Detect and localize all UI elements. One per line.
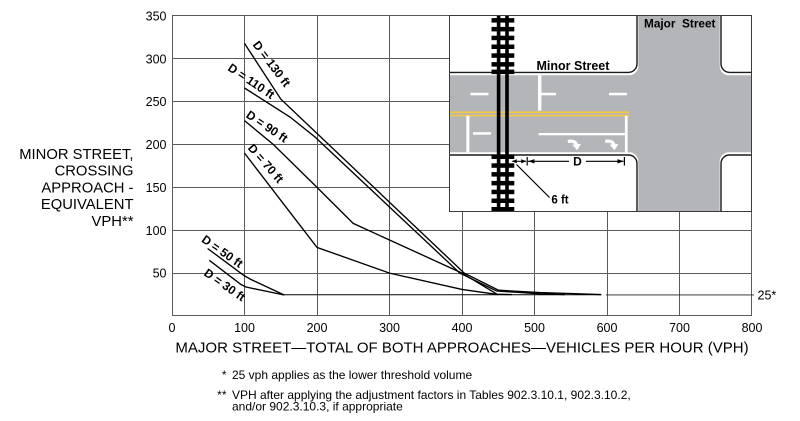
- svg-text:200: 200: [146, 138, 167, 152]
- svg-text:150: 150: [146, 181, 167, 195]
- svg-text:100: 100: [146, 224, 167, 238]
- svg-text:300: 300: [379, 321, 400, 335]
- svg-text:6 ft: 6 ft: [551, 195, 568, 207]
- svg-text:25*: 25*: [758, 289, 777, 303]
- svg-text:and/or 902.3.10.3, if appropri: and/or 902.3.10.3, if appropriate: [232, 400, 403, 414]
- svg-text:**: **: [217, 388, 227, 402]
- svg-text:0: 0: [169, 321, 176, 335]
- svg-text:500: 500: [524, 321, 545, 335]
- svg-text:VPH**: VPH**: [92, 214, 134, 230]
- svg-text:800: 800: [742, 321, 763, 335]
- svg-text:350: 350: [146, 10, 167, 24]
- svg-text:EQUIVALENT: EQUIVALENT: [41, 197, 134, 213]
- svg-text:100: 100: [234, 321, 255, 335]
- svg-text:600: 600: [597, 321, 618, 335]
- svg-text:Minor Street: Minor Street: [537, 59, 611, 73]
- svg-text:700: 700: [669, 321, 690, 335]
- svg-text:200: 200: [307, 321, 328, 335]
- svg-text:400: 400: [452, 321, 473, 335]
- svg-text:CROSSING: CROSSING: [55, 164, 134, 180]
- svg-text:MINOR STREET,: MINOR STREET,: [19, 147, 133, 163]
- svg-text:300: 300: [146, 52, 167, 66]
- svg-text:25 vph applies as the lower th: 25 vph applies as the lower threshold vo…: [232, 368, 472, 382]
- svg-text:Major Street: Major Street: [644, 17, 716, 31]
- svg-text:APPROACH -: APPROACH -: [41, 181, 133, 197]
- svg-text:50: 50: [153, 267, 167, 281]
- svg-text:250: 250: [146, 95, 167, 109]
- svg-text:D: D: [573, 154, 582, 168]
- svg-text:*: *: [222, 368, 227, 382]
- svg-text:MAJOR STREET—TOTAL OF BOTH APP: MAJOR STREET—TOTAL OF BOTH APPROACHES—VE…: [175, 340, 748, 357]
